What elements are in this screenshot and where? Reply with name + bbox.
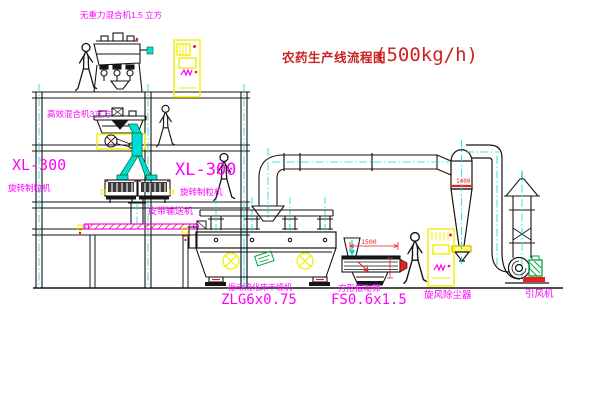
granulator-right-machine: [138, 175, 174, 203]
cyclone-label: 旋风除尘器: [424, 291, 472, 301]
dryer-model-label: ZLG6x0.75: [221, 293, 297, 307]
belt-conveyor-label: 皮带输送机: [148, 207, 193, 216]
fan-label: 引风机: [525, 290, 554, 300]
sieve-model-label: FS0.6x1.5: [331, 293, 407, 307]
diagram-title: 农药生产线流程图: [282, 52, 386, 65]
diagram-title-capacity: (500kg/h): [375, 46, 478, 65]
person-figure-second-floor: [157, 105, 175, 146]
granulator-mid-model-label: XL-300: [175, 162, 236, 179]
control-cabinet-top: [174, 40, 200, 97]
granulator-left-name-label: 旋转制粒机: [8, 184, 51, 193]
person-figure-ground: [404, 233, 426, 284]
gravity-free-mixer-label: 无重力混合机1.5 立方: [80, 11, 162, 20]
control-cabinet-bottom: [428, 229, 454, 286]
high-efficiency-mixer-label: 高效混合机3立方: [47, 110, 111, 119]
drop-chute: [128, 203, 146, 229]
fluid-bed-dryer-machine: [182, 197, 336, 286]
belt-conveyor-machine: [78, 221, 206, 288]
pesticide-line-flow-diagram: 无重力混合机1.5 立方 农药生产线流程图 (500kg/h) 高效混合机3立方…: [0, 0, 600, 403]
granulator-left-model-label: XL-300: [12, 158, 66, 173]
induced-draft-fan-machine: [505, 256, 549, 283]
sieve-dimension-label: 1500: [361, 239, 377, 246]
granulator-mid-name-label: 旋转制粒机: [180, 188, 223, 197]
dryer-name-label: 振动流化床干燥机: [228, 284, 292, 292]
granulator-left-machine: [102, 175, 138, 203]
cyclone-dimension-label: 1400: [456, 179, 470, 185]
person-figure-top-floor: [76, 44, 97, 91]
gravity-free-mixer-machine: [92, 33, 153, 92]
